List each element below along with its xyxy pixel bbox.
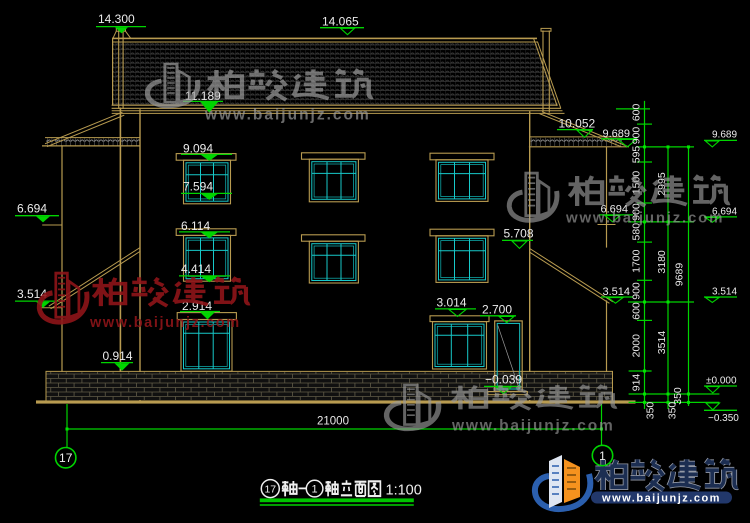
svg-text:2000: 2000: [631, 334, 643, 358]
svg-text:7.594: 7.594: [183, 179, 213, 193]
svg-text:3.514: 3.514: [603, 286, 631, 298]
svg-text:6.114: 6.114: [181, 219, 210, 233]
svg-text:±0.000: ±0.000: [706, 376, 737, 387]
svg-text:21000: 21000: [317, 416, 349, 428]
svg-text:−0.350: −0.350: [708, 413, 739, 424]
svg-text:3.514: 3.514: [712, 287, 737, 298]
svg-text:17: 17: [264, 483, 276, 495]
svg-text:9.689: 9.689: [712, 130, 737, 141]
svg-text:www.baijunjz.com: www.baijunjz.com: [89, 315, 241, 331]
svg-text:1: 1: [312, 484, 318, 496]
svg-text:www.baijunjz.com: www.baijunjz.com: [601, 492, 721, 504]
svg-text:17: 17: [59, 451, 73, 465]
svg-text:www.baijunjz.com: www.baijunjz.com: [451, 418, 615, 435]
svg-text:900: 900: [631, 282, 643, 300]
svg-text:600: 600: [631, 103, 643, 121]
svg-text:2.700: 2.700: [482, 303, 512, 317]
svg-text:1:100: 1:100: [386, 483, 422, 499]
svg-text:www.baijunjz.com: www.baijunjz.com: [204, 107, 371, 124]
svg-text:600: 600: [631, 302, 643, 320]
svg-text:350: 350: [672, 387, 684, 405]
svg-text:14.300: 14.300: [98, 12, 135, 26]
svg-text:595: 595: [631, 146, 643, 164]
svg-text:10.052: 10.052: [559, 117, 596, 131]
svg-text:3514: 3514: [656, 331, 668, 355]
svg-text:−0.039: −0.039: [485, 372, 522, 386]
svg-text:3180: 3180: [656, 250, 668, 274]
svg-text:www.baijunjz.com: www.baijunjz.com: [565, 210, 724, 227]
svg-text:6.694: 6.694: [17, 201, 47, 215]
svg-text:9.094: 9.094: [183, 141, 213, 155]
svg-text:900: 900: [631, 127, 643, 145]
svg-text:14.065: 14.065: [322, 15, 359, 29]
svg-text:0.914: 0.914: [103, 349, 133, 363]
svg-text:9689: 9689: [674, 263, 686, 287]
svg-text:5.708: 5.708: [504, 226, 534, 240]
svg-text:1: 1: [599, 449, 606, 463]
svg-text:1700: 1700: [631, 249, 643, 273]
svg-text:350: 350: [645, 402, 657, 420]
svg-text:4.414: 4.414: [181, 262, 211, 276]
svg-text:914: 914: [631, 374, 643, 392]
svg-text:3.014: 3.014: [437, 296, 467, 310]
